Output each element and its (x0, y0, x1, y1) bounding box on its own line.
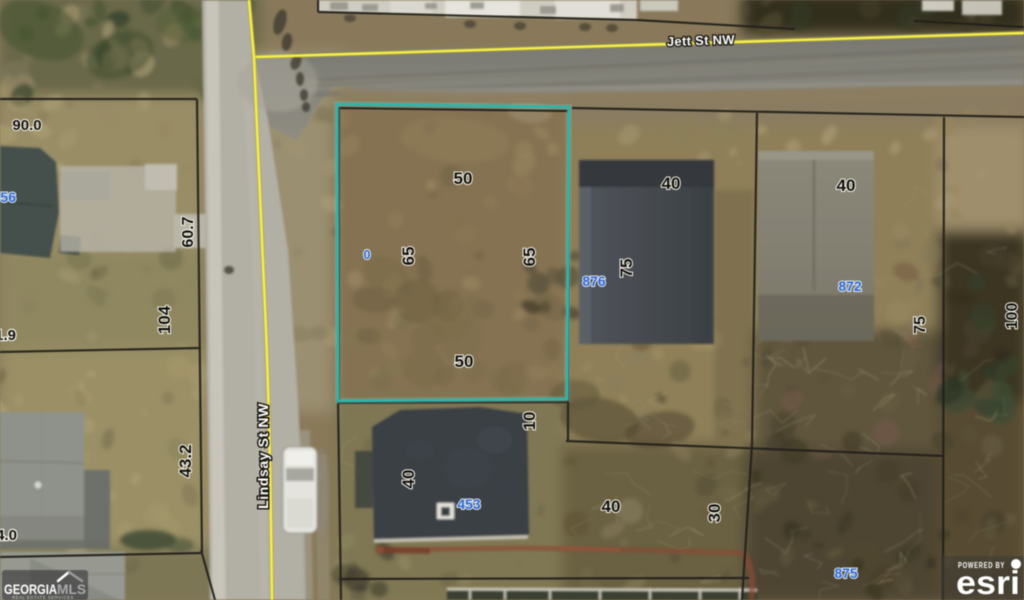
svg-text:1.9: 1.9 (0, 327, 16, 344)
svg-text:40: 40 (399, 470, 418, 489)
svg-text:60.7: 60.7 (180, 216, 197, 247)
svg-text:30: 30 (705, 504, 724, 523)
svg-text:56: 56 (0, 189, 16, 205)
svg-text:Lindsay St NW: Lindsay St NW (255, 403, 271, 509)
svg-text:50: 50 (454, 169, 473, 188)
svg-text:Jett St NW: Jett St NW (667, 32, 736, 49)
svg-text:43.2: 43.2 (176, 444, 195, 477)
svg-text:4.0: 4.0 (0, 527, 17, 544)
svg-text:876: 876 (582, 273, 606, 289)
svg-text:65: 65 (399, 247, 418, 266)
svg-text:872: 872 (838, 278, 862, 294)
svg-text:875: 875 (834, 565, 858, 581)
svg-text:50: 50 (455, 352, 474, 371)
svg-text:453: 453 (457, 496, 481, 512)
svg-text:75: 75 (912, 316, 929, 334)
svg-text:10: 10 (520, 412, 539, 431)
svg-text:0: 0 (364, 248, 371, 262)
svg-text:104: 104 (155, 305, 174, 334)
svg-text:90.0: 90.0 (12, 117, 41, 134)
svg-text:esri: esri (956, 564, 1020, 600)
svg-text:65: 65 (520, 248, 539, 267)
svg-text:100: 100 (1004, 303, 1021, 330)
svg-text:40: 40 (602, 497, 621, 516)
svg-text:40: 40 (662, 174, 681, 193)
svg-text:REAL ESTATE SERVICES: REAL ESTATE SERVICES (12, 595, 74, 600)
svg-text:40: 40 (837, 176, 856, 195)
svg-text:75: 75 (617, 259, 636, 278)
